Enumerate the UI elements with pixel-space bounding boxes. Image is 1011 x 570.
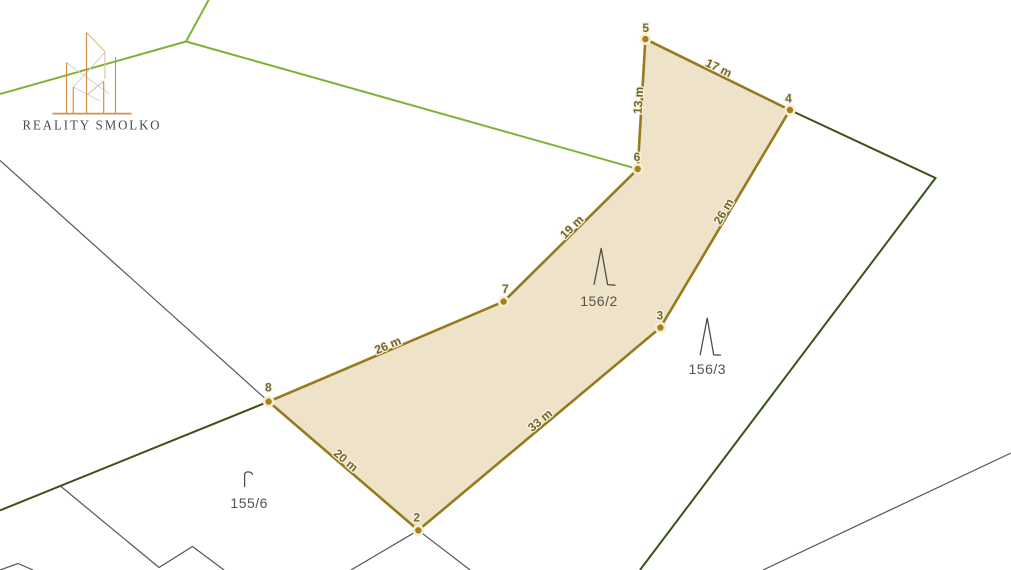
svg-text:REALITY SMOLKO: REALITY SMOLKO: [23, 118, 162, 133]
svg-text:6: 6: [634, 150, 641, 164]
svg-text:3: 3: [656, 309, 663, 323]
svg-text:7: 7: [502, 282, 509, 296]
svg-text:5: 5: [642, 21, 649, 35]
svg-text:2: 2: [413, 511, 420, 525]
svg-text:155/6: 155/6: [230, 495, 268, 511]
svg-text:156/3: 156/3: [689, 361, 727, 377]
svg-text:8: 8: [265, 381, 272, 395]
svg-text:4: 4: [785, 92, 792, 106]
svg-text:13 m: 13 m: [631, 86, 647, 114]
svg-text:156/2: 156/2: [580, 293, 618, 309]
